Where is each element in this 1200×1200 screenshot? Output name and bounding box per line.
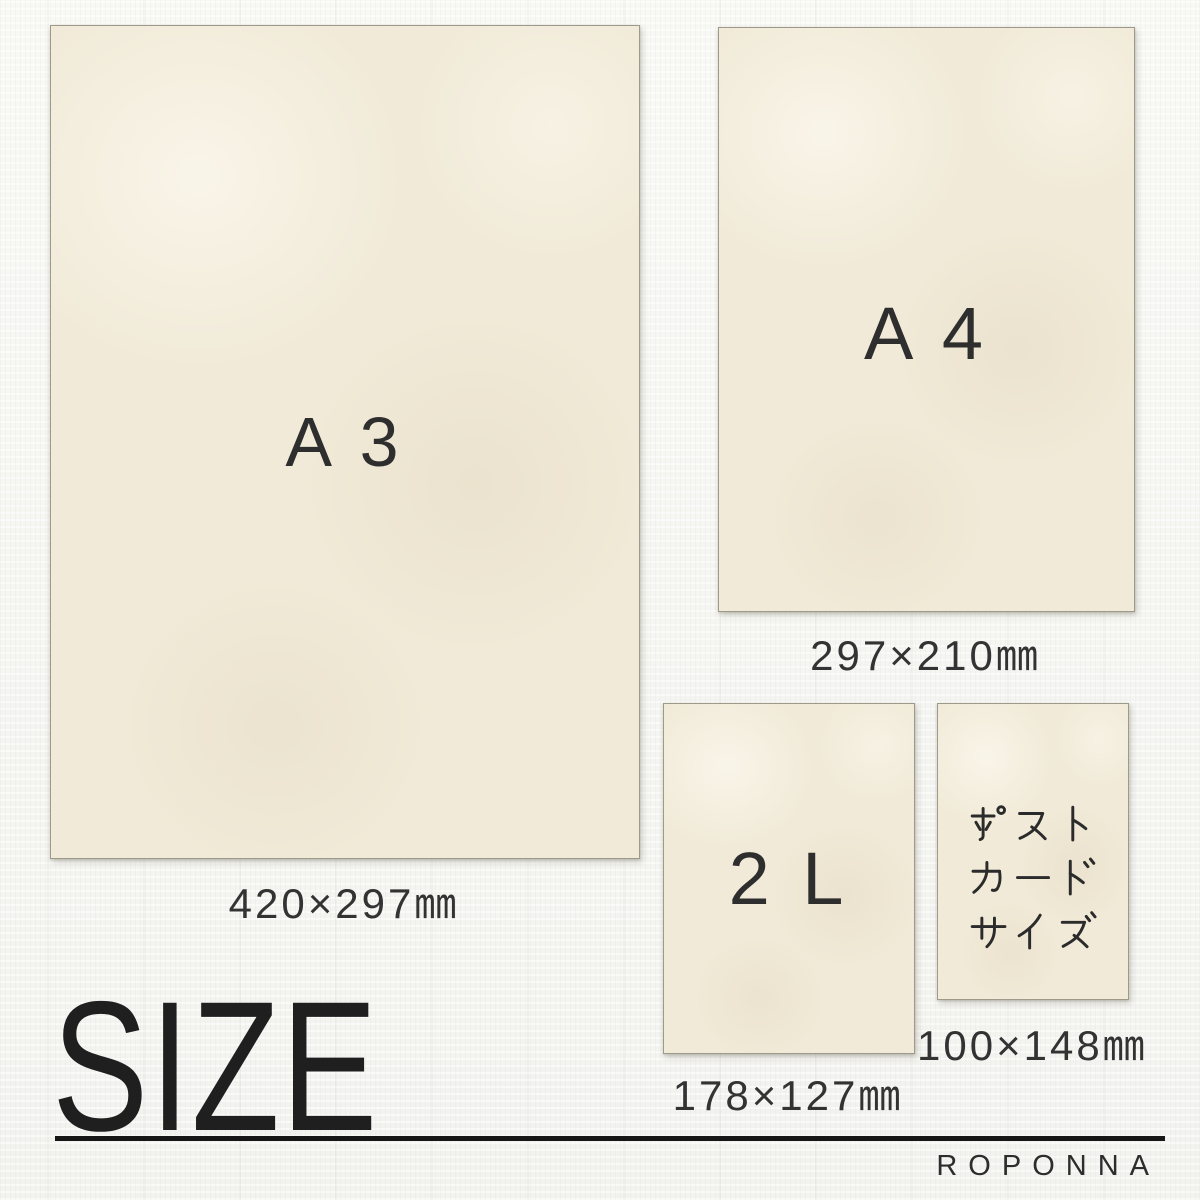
paper-a3-dimensions: 420×297㎜ <box>50 870 638 931</box>
katakana-su-glyph <box>1012 803 1054 845</box>
katakana-sa-glyph <box>968 911 1010 953</box>
divider-rule <box>55 1136 1165 1141</box>
katakana-long-vowel-glyph <box>1012 857 1054 899</box>
postcard-label-line-2 <box>968 857 1098 899</box>
brand-roponna: ROPONNA <box>936 1150 1160 1183</box>
katakana-po-glyph <box>968 803 1010 845</box>
katakana-ka-glyph <box>968 857 1010 899</box>
katakana-i-glyph <box>1012 911 1054 953</box>
paper-a4: A 4 <box>718 27 1135 612</box>
postcard-label-line-1 <box>968 803 1098 845</box>
katakana-to-glyph <box>1056 803 1098 845</box>
paper-postcard <box>937 703 1129 1000</box>
paper-2l-label: 2 L <box>729 836 850 921</box>
paper-a3-label: A 3 <box>285 402 404 482</box>
paper-2l: 2 L <box>663 703 915 1054</box>
katakana-do-glyph <box>1056 857 1098 899</box>
paper-a3: A 3 <box>50 25 640 859</box>
postcard-size-label <box>968 803 1098 953</box>
paper-2l-dimensions: 178×127㎜ <box>663 1062 913 1123</box>
postcard-label-line-3 <box>968 911 1098 953</box>
paper-a4-dimensions: 297×210㎜ <box>718 622 1133 683</box>
paper-a4-label: A 4 <box>864 291 989 376</box>
size-heading: SIZE <box>52 975 379 1160</box>
katakana-zu-glyph <box>1056 911 1098 953</box>
paper-postcard-dimensions: 100×148㎜ <box>917 1012 1147 1073</box>
size-chart-image: A 3 420×297㎜ A 4 297×210㎜ 2 L 178×127㎜ <box>0 0 1200 1200</box>
